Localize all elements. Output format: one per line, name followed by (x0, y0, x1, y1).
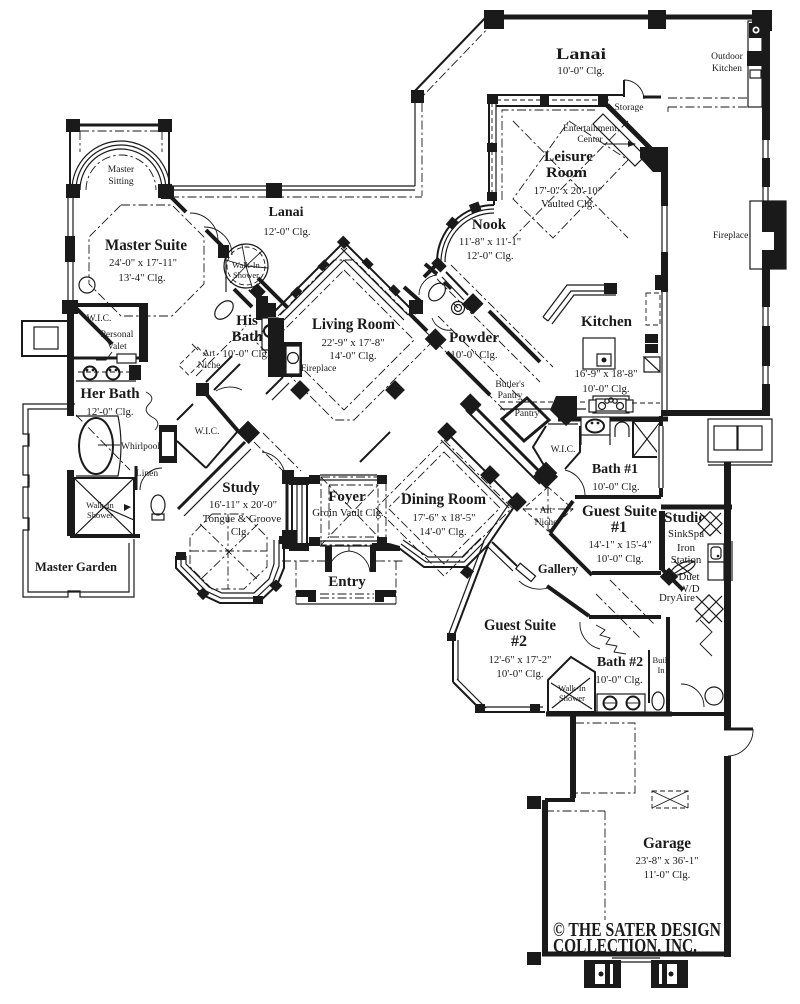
svg-text:Clg.: Clg. (231, 526, 249, 538)
svg-text:Kitchen: Kitchen (712, 64, 742, 74)
svg-text:W.I.C.: W.I.C. (551, 445, 576, 455)
svg-text:Entry: Entry (328, 574, 366, 590)
svg-text:22'-9" x 17'-8": 22'-9" x 17'-8" (321, 337, 384, 349)
svg-text:Pantry: Pantry (515, 409, 540, 419)
svg-text:COLLECTION, INC.: COLLECTION, INC. (553, 936, 697, 957)
svg-text:14'-0" Clg.: 14'-0" Clg. (329, 350, 376, 362)
svg-text:13'-4" Clg.: 13'-4" Clg. (118, 272, 165, 284)
svg-text:Tongue & Groove: Tongue & Groove (203, 513, 282, 525)
svg-text:17'-6" x 18'-5": 17'-6" x 18'-5" (412, 512, 475, 524)
svg-text:Dining Room: Dining Room (401, 491, 487, 508)
svg-text:Outdoor: Outdoor (711, 52, 744, 62)
svg-text:W.I.C.: W.I.C. (87, 314, 112, 324)
svg-text:#1: #1 (611, 519, 627, 536)
svg-text:10'-0" Clg.: 10'-0" Clg. (596, 553, 643, 565)
svg-text:Art: Art (540, 506, 553, 516)
svg-text:Her Bath: Her Bath (80, 386, 140, 402)
svg-text:14'-1" x 15'-4": 14'-1" x 15'-4" (588, 539, 651, 551)
svg-text:Shower: Shower (87, 510, 113, 520)
svg-text:10'-0" Clg.: 10'-0" Clg. (595, 674, 642, 686)
svg-text:Master: Master (108, 165, 135, 175)
svg-text:12'-6" x 17'-2": 12'-6" x 17'-2" (488, 654, 551, 666)
svg-text:Walk-In: Walk-In (232, 260, 260, 270)
svg-text:Center: Center (577, 135, 603, 145)
svg-text:Butler's: Butler's (495, 380, 524, 390)
svg-text:Lanai: Lanai (556, 46, 607, 63)
svg-text:14'-0" Clg.: 14'-0" Clg. (419, 526, 466, 538)
svg-text:Sitting: Sitting (108, 177, 134, 187)
svg-text:Master Suite: Master Suite (105, 237, 187, 254)
svg-text:10'-0" Clg.: 10'-0" Clg. (450, 349, 497, 361)
svg-text:Entertainment: Entertainment (563, 124, 617, 134)
svg-text:24'-0" x 17'-11": 24'-0" x 17'-11" (109, 257, 177, 269)
svg-text:SinkSpa: SinkSpa (668, 528, 704, 540)
svg-text:#2: #2 (511, 633, 527, 650)
svg-text:Foyer: Foyer (328, 489, 366, 505)
svg-text:Fireplace: Fireplace (713, 231, 748, 241)
svg-text:Iron: Iron (677, 542, 696, 554)
svg-text:Walk-In: Walk-In (86, 500, 114, 510)
svg-text:10'-0" Clg.: 10'-0" Clg. (557, 65, 604, 77)
svg-text:Shower: Shower (559, 693, 585, 703)
svg-text:Station: Station (671, 554, 702, 566)
svg-text:Fireplace: Fireplace (301, 364, 336, 374)
svg-text:Powder: Powder (449, 330, 499, 346)
svg-text:Walk-In: Walk-In (558, 683, 586, 693)
svg-text:Pantry: Pantry (498, 391, 523, 401)
svg-text:Bath #2: Bath #2 (597, 655, 643, 670)
svg-text:Bath #1: Bath #1 (592, 462, 638, 477)
svg-text:16'-9" x 18'-8": 16'-9" x 18'-8" (574, 368, 637, 380)
svg-text:11'-0" Clg.: 11'-0" Clg. (644, 869, 691, 881)
svg-text:10'-0" Clg.: 10'-0" Clg. (582, 383, 629, 395)
svg-text:W.I.C.: W.I.C. (195, 427, 220, 437)
svg-text:His: His (236, 313, 258, 329)
svg-text:11'-8" x 11'-1": 11'-8" x 11'-1" (459, 236, 521, 248)
svg-text:Vaulted Clg.: Vaulted Clg. (541, 198, 595, 210)
svg-text:Storage: Storage (614, 103, 643, 113)
svg-text:Valet: Valet (107, 342, 127, 352)
svg-text:Living Room: Living Room (312, 316, 396, 333)
svg-text:Master Garden: Master Garden (35, 560, 117, 574)
svg-text:17'-0" x 20'-10": 17'-0" x 20'-10" (534, 185, 602, 197)
svg-text:12'-0" Clg.: 12'-0" Clg. (466, 250, 513, 262)
svg-text:Kitchen: Kitchen (581, 314, 633, 330)
svg-text:Whirlpool: Whirlpool (121, 442, 160, 452)
svg-text:Guest Suite: Guest Suite (582, 503, 657, 520)
svg-text:Garage: Garage (643, 835, 691, 852)
svg-text:16'-11" x 20'-0": 16'-11" x 20'-0" (209, 499, 277, 511)
svg-text:Bath: Bath (232, 329, 264, 345)
svg-text:Study: Study (222, 480, 260, 496)
svg-text:Room: Room (546, 165, 588, 181)
svg-text:Lanai: Lanai (268, 205, 303, 220)
svg-text:10'-0" Clg.: 10'-0" Clg. (496, 668, 543, 680)
svg-text:DryAire: DryAire (659, 592, 695, 604)
svg-text:23'-8" x 36'-1": 23'-8" x 36'-1" (635, 855, 698, 867)
svg-text:Leisure: Leisure (544, 149, 593, 165)
svg-text:Personal: Personal (101, 330, 134, 340)
svg-text:In: In (657, 665, 665, 675)
svg-text:Nook: Nook (472, 217, 507, 233)
svg-text:Duet: Duet (679, 571, 700, 583)
svg-text:Shower: Shower (233, 270, 259, 280)
svg-text:Gallery: Gallery (538, 562, 579, 576)
svg-text:12'-0" Clg.: 12'-0" Clg. (263, 226, 310, 238)
svg-text:Guest Suite: Guest Suite (484, 617, 556, 634)
svg-text:10'-0" Clg.: 10'-0" Clg. (592, 481, 639, 493)
